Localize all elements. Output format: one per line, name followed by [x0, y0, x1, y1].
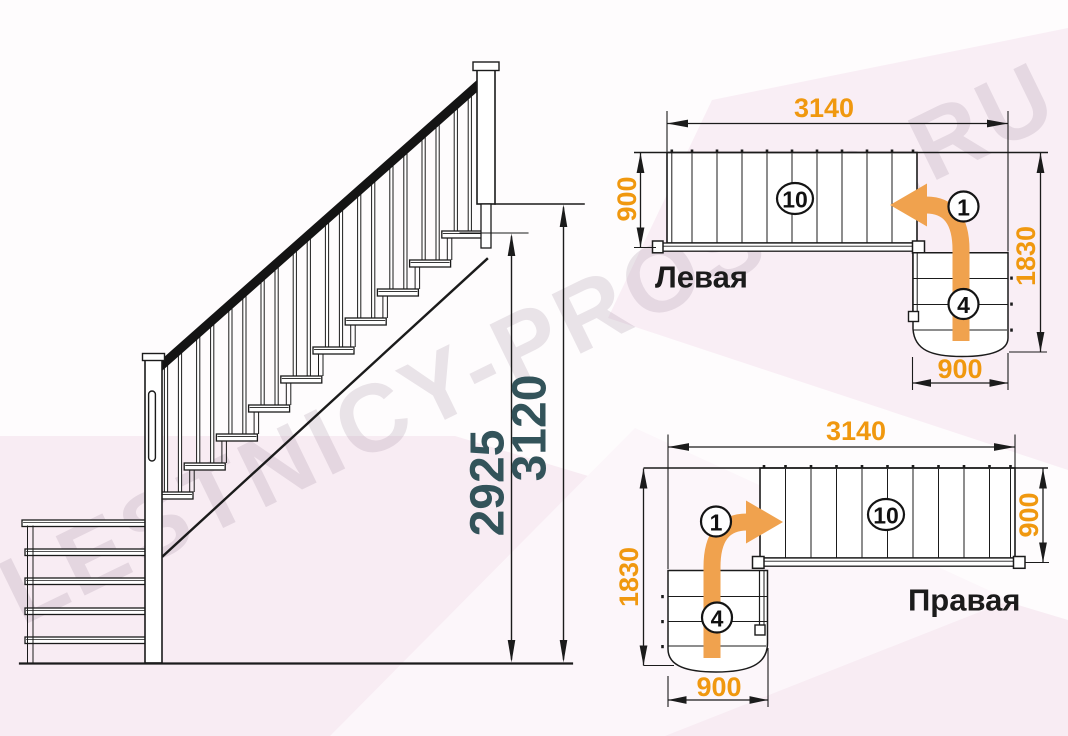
svg-text:10: 10 — [782, 187, 808, 213]
newel-square-lower — [909, 312, 919, 322]
dim-flight-width-label: 900 — [1014, 492, 1044, 537]
step-count-badge-first: 1 — [701, 507, 731, 537]
landing-fascia — [481, 204, 491, 248]
dim-turn-depth-label: 1830 — [614, 547, 644, 607]
dim-lower-width-label: 900 — [696, 672, 741, 702]
dim-turn-depth-label: 1830 — [1011, 226, 1041, 286]
newel-square-corner — [913, 241, 925, 253]
step-count-badge-lower: 4 — [949, 289, 979, 319]
svg-text:10: 10 — [873, 503, 899, 529]
newel-groove — [149, 391, 156, 461]
newel-square-left — [653, 241, 664, 253]
newel-square-corner — [753, 557, 765, 569]
step-count-badge-straight: 10 — [868, 499, 904, 530]
dim-flight-width-label: 900 — [612, 176, 642, 221]
dim-length-label: 3140 — [794, 93, 854, 123]
svg-text:4: 4 — [957, 292, 970, 318]
plan-left-title: Левая — [655, 260, 748, 295]
svg-text:4: 4 — [711, 606, 724, 632]
stair-diagram: LESTNICY-PROSTO.RU 2925 — [0, 0, 1068, 736]
newel-square-lower — [755, 625, 765, 635]
top-newel-post — [477, 70, 495, 204]
step-count-badge-lower: 4 — [702, 603, 732, 633]
stair-drawing-page: LESTNICY-PROSTO.RU 2925 — [0, 0, 1068, 736]
step-count-badge-straight: 10 — [777, 183, 813, 214]
newel-square-right — [1014, 557, 1026, 569]
stringer-band — [754, 558, 1018, 566]
dim-height-total-label: 3120 — [504, 375, 557, 482]
dim-length-label: 3140 — [826, 416, 886, 446]
svg-text:1: 1 — [710, 510, 723, 536]
svg-text:1: 1 — [957, 195, 970, 221]
stringer-band — [661, 243, 922, 251]
plan-right-title: Правая — [908, 583, 1020, 618]
step-count-badge-first: 1 — [949, 192, 979, 222]
bottom-newel-cap — [143, 354, 165, 361]
dim-lower-width-label: 900 — [937, 354, 982, 384]
top-newel-cap — [473, 62, 499, 71]
